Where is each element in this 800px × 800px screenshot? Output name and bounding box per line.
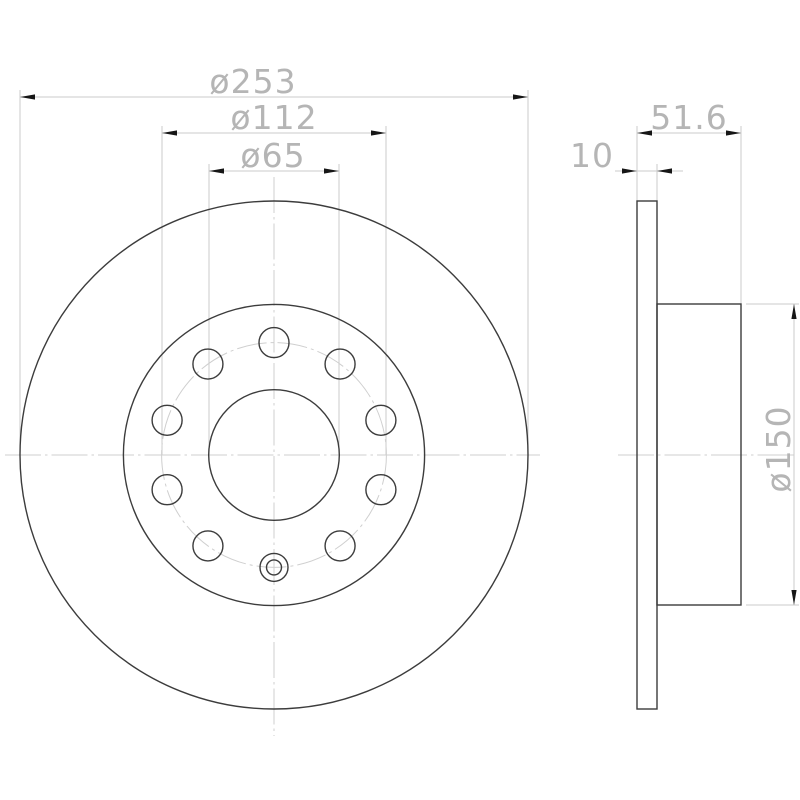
dim-center-bore-diameter-arrow [324, 168, 339, 173]
bolt-hole-7 [152, 475, 182, 505]
dim-plate-thickness-arrow [657, 168, 672, 173]
dim-bolt-circle-diameter-arrow [162, 130, 177, 135]
drawing-canvas: ø253ø112ø6551.610ø150 [0, 0, 800, 800]
dim-outer-diameter-label: ø253 [209, 62, 296, 101]
dim-hat-diameter-label: ø150 [759, 405, 798, 492]
dim-hat-diameter-arrow [791, 304, 796, 319]
dim-outer-diameter-arrow [20, 94, 35, 99]
dim-center-bore-diameter-arrow [209, 168, 224, 173]
dim-center-bore-diameter-label: ø65 [240, 136, 305, 175]
dim-hat-diameter-arrow [791, 590, 796, 605]
dim-bolt-circle-diameter-label: ø112 [230, 98, 317, 137]
dimension-and-extension-lines [20, 90, 799, 605]
dim-overall-width-label: 51.6 [650, 98, 727, 137]
dim-bolt-circle-diameter-arrow [371, 130, 386, 135]
dim-plate-thickness-arrow [622, 168, 637, 173]
dim-overall-width-arrow [726, 130, 741, 135]
dim-outer-diameter-arrow [513, 94, 528, 99]
technical-drawing-svg: ø253ø112ø6551.610ø150 [0, 0, 800, 800]
dim-plate-thickness-label: 10 [570, 136, 614, 175]
dimension-labels: ø253ø112ø6551.610ø150 [209, 62, 798, 493]
